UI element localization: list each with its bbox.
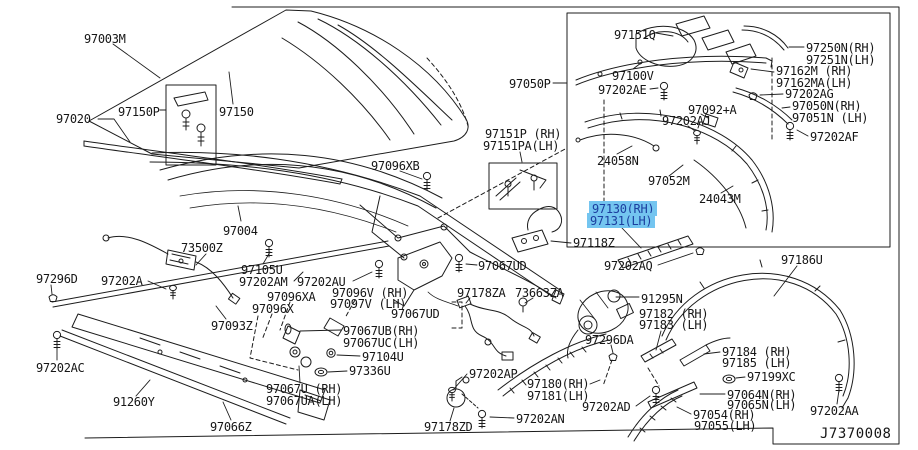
part-label: 97050P — [509, 78, 551, 90]
part-label: 97051N (LH) — [792, 112, 868, 124]
part-label: 73663ZA — [515, 287, 563, 299]
part-label: 97067UD — [478, 260, 526, 272]
part-label: 24058N — [597, 155, 639, 167]
part-label: 97096X — [252, 303, 294, 315]
part-label: 97202AM — [239, 276, 287, 288]
part-label: 97096XB — [371, 160, 419, 172]
part-label: 97100V — [612, 70, 654, 82]
part-label: 97118Z — [573, 237, 615, 249]
parts-diagram-page: 97003M9702097150P9715097096XB97050P97151… — [0, 0, 918, 450]
part-label: 97202AJ — [662, 115, 710, 127]
labels-layer: 97003M9702097150P9715097096XB97050P97151… — [0, 0, 918, 450]
part-label: 97066Z — [210, 421, 252, 433]
part-label: 73500Z — [181, 242, 223, 254]
part-label: 97052M — [648, 175, 690, 187]
part-label: 97104U — [362, 351, 404, 363]
part-label: 97178ZA — [457, 287, 505, 299]
part-label: 97093Z — [211, 320, 253, 332]
part-label: 97202AN — [516, 413, 564, 425]
part-label: 97067UD — [391, 308, 439, 320]
part-label: 97202AC — [36, 362, 84, 374]
part-label-highlighted: 97131(LH) — [587, 213, 655, 228]
part-label: 97202AD — [582, 401, 630, 413]
part-label: 97202AF — [810, 131, 858, 143]
part-label: 97336U — [349, 365, 391, 377]
part-label: 97067UA(LH) — [266, 395, 342, 407]
part-label: 24043M — [699, 193, 741, 205]
part-label: 97003M — [84, 33, 126, 45]
diagram-code: J7370008 — [820, 426, 891, 442]
part-label: 97185 (LH) — [722, 357, 791, 369]
part-label: 97199XC — [747, 371, 795, 383]
part-label: 97151Q — [614, 29, 656, 41]
part-label: 97055(LH) — [694, 420, 756, 432]
part-label: 97186U — [781, 254, 823, 266]
part-label: 97202AE — [598, 84, 646, 96]
part-label: 91260Y — [113, 396, 155, 408]
part-label: 97202A — [101, 275, 143, 287]
part-label: 97296DA — [585, 334, 633, 346]
part-label: 97202AP — [469, 368, 517, 380]
part-label: 97151PA(LH) — [483, 140, 559, 152]
part-label: 97020 — [56, 113, 91, 125]
part-label: 97183 (LH) — [639, 319, 708, 331]
part-label: 97067UC(LH) — [343, 337, 419, 349]
part-label: 97178ZD — [424, 421, 472, 433]
part-label: 97181(LH) — [527, 390, 589, 402]
part-label: 97150 — [219, 106, 254, 118]
part-label: 97004 — [223, 225, 258, 237]
part-label: 97296D — [36, 273, 78, 285]
part-label: 97150P — [118, 106, 160, 118]
part-label: 97202AQ — [604, 260, 652, 272]
part-label: 91295N — [641, 293, 683, 305]
part-label: 97202AA — [810, 405, 858, 417]
